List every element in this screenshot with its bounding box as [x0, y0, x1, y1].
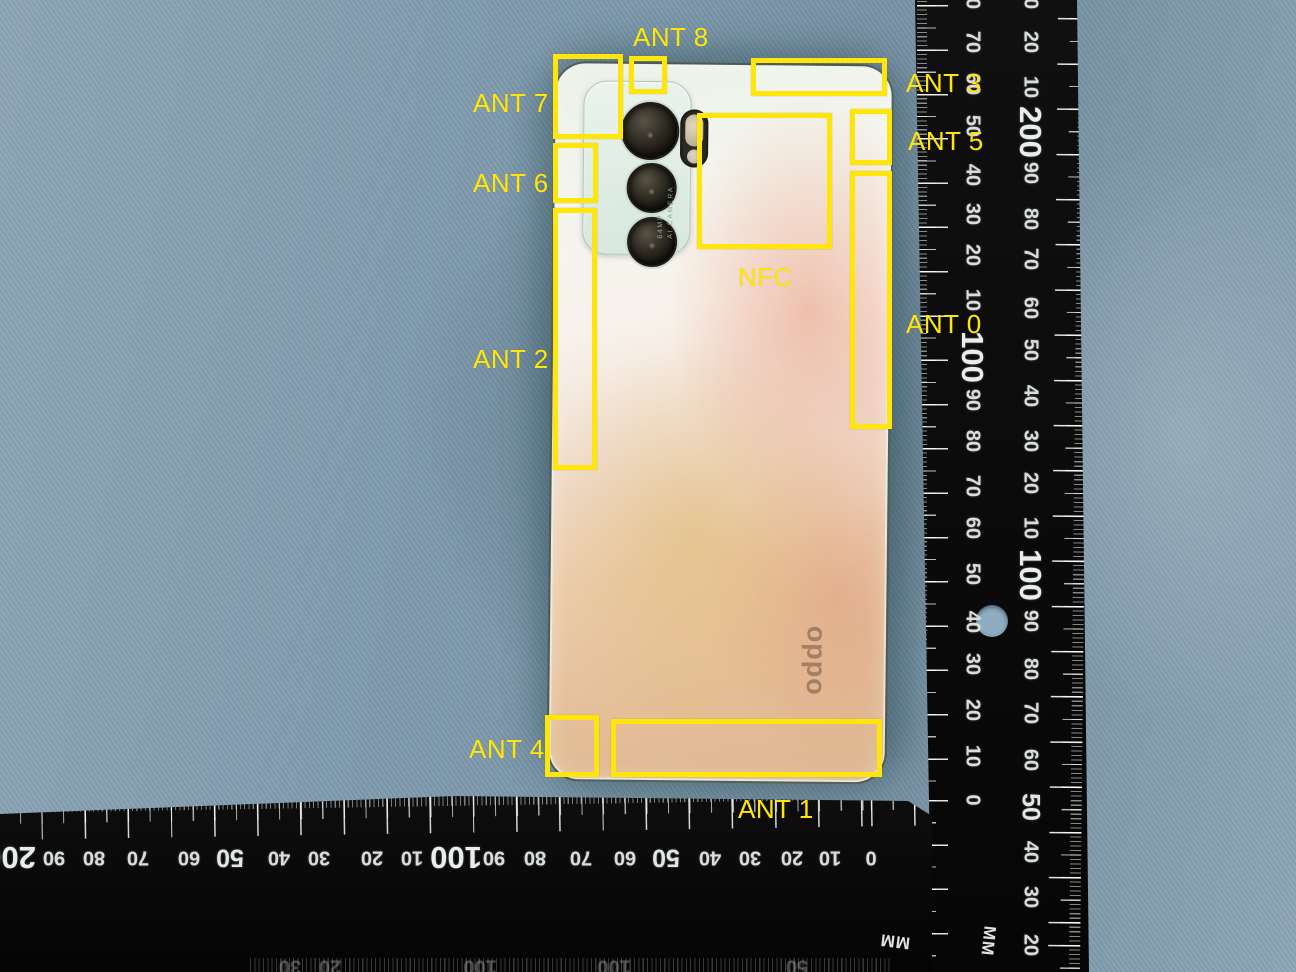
- vertical-ruler: [913, 0, 1091, 972]
- ant-8-label: ANT 8: [633, 22, 709, 53]
- ant-4-label: ANT 4: [469, 734, 545, 765]
- ant-2-label: ANT 2: [473, 344, 549, 375]
- oppo-logo: oppo: [800, 626, 832, 696]
- camera-spec-text: 64MP AI CAMERA: [656, 186, 677, 239]
- bottom-ruler: [0, 790, 936, 972]
- ruler-ticks-major: [1048, 0, 1090, 972]
- flash-sensor-icon: [687, 149, 701, 163]
- ant-6-label: ANT 6: [473, 168, 549, 199]
- camera-lens-1-icon: [621, 102, 680, 161]
- flash-led-icon: [685, 114, 703, 146]
- flash-module: [680, 109, 709, 167]
- ruler-ticks-faint: [250, 958, 890, 972]
- ruler-hole: [976, 605, 1008, 637]
- ruler-ticks-major: [0, 784, 916, 840]
- phone-body: 64MP AI CAMERA oppo: [546, 61, 894, 785]
- annotated-photo-stage: 64MP AI CAMERA oppo MM MM 80706050403020…: [0, 0, 1296, 972]
- ant-7-label: ANT 7: [473, 88, 549, 119]
- camera-spec-line1: 64MP: [656, 186, 667, 239]
- camera-spec-line2: AI CAMERA: [666, 186, 677, 239]
